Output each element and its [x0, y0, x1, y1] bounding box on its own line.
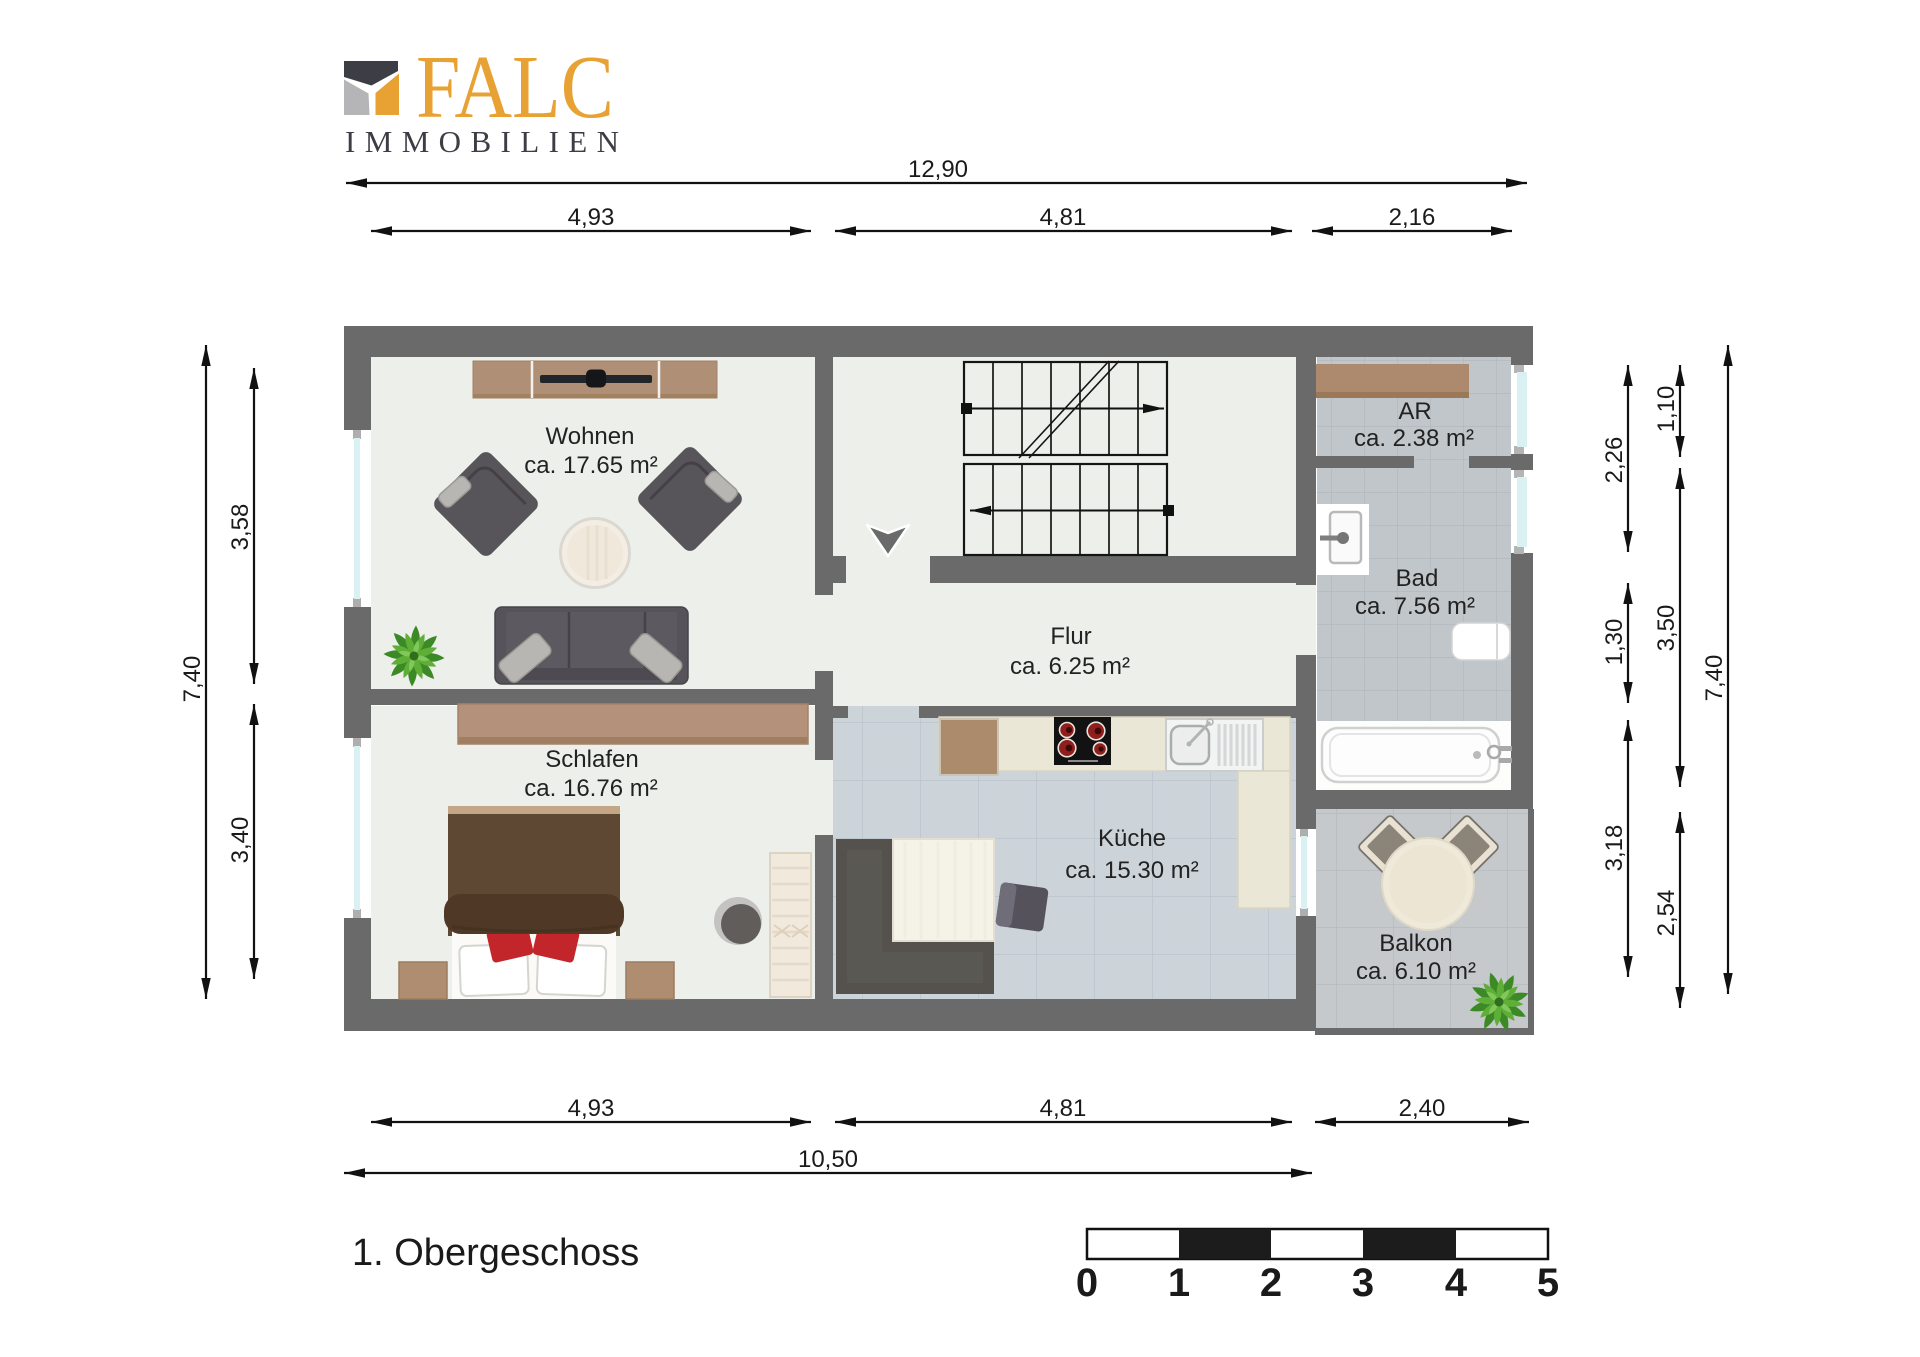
- svg-text:4: 4: [1445, 1261, 1468, 1305]
- svg-text:1. Obergeschoss: 1. Obergeschoss: [352, 1232, 639, 1274]
- svg-text:4,93: 4,93: [568, 204, 615, 231]
- svg-text:ca. 17.65 m²: ca. 17.65 m²: [524, 452, 657, 479]
- svg-text:Wohnen: Wohnen: [546, 423, 635, 450]
- svg-text:4,81: 4,81: [1040, 204, 1087, 231]
- svg-text:2,16: 2,16: [1389, 204, 1436, 231]
- svg-text:ca. 6.25 m²: ca. 6.25 m²: [1010, 653, 1130, 680]
- svg-text:ca. 16.76 m²: ca. 16.76 m²: [524, 775, 657, 802]
- svg-text:2,26: 2,26: [1601, 437, 1628, 484]
- svg-text:ca. 2.38 m²: ca. 2.38 m²: [1354, 425, 1474, 452]
- svg-text:4,93: 4,93: [568, 1095, 615, 1122]
- svg-text:12,90: 12,90: [908, 156, 968, 183]
- svg-text:1: 1: [1168, 1261, 1190, 1305]
- svg-text:Balkon: Balkon: [1379, 930, 1452, 957]
- svg-text:3,18: 3,18: [1601, 825, 1628, 872]
- svg-text:3,58: 3,58: [227, 504, 254, 551]
- svg-text:1,30: 1,30: [1601, 619, 1628, 666]
- svg-text:7,40: 7,40: [179, 656, 206, 703]
- svg-text:0: 0: [1076, 1261, 1098, 1305]
- svg-text:2: 2: [1260, 1261, 1282, 1305]
- svg-text:Küche: Küche: [1098, 825, 1166, 852]
- svg-text:1,10: 1,10: [1653, 386, 1680, 433]
- svg-text:ca. 15.30 m²: ca. 15.30 m²: [1065, 857, 1198, 884]
- svg-text:5: 5: [1537, 1261, 1559, 1305]
- svg-text:IMMOBILIEN: IMMOBILIEN: [345, 124, 619, 159]
- svg-text:FALC: FALC: [416, 38, 614, 137]
- svg-text:4,81: 4,81: [1040, 1095, 1087, 1122]
- svg-text:10,50: 10,50: [798, 1146, 858, 1173]
- svg-text:2,40: 2,40: [1399, 1095, 1446, 1122]
- svg-text:3: 3: [1352, 1261, 1374, 1305]
- svg-text:ca. 6.10 m²: ca. 6.10 m²: [1356, 958, 1476, 985]
- svg-text:Schlafen: Schlafen: [545, 746, 638, 773]
- svg-text:2,54: 2,54: [1653, 890, 1680, 937]
- svg-text:ca. 7.56 m²: ca. 7.56 m²: [1355, 593, 1475, 620]
- svg-text:7,40: 7,40: [1701, 655, 1728, 702]
- svg-text:3,50: 3,50: [1653, 605, 1680, 652]
- svg-text:3,40: 3,40: [227, 817, 254, 864]
- svg-text:Bad: Bad: [1396, 565, 1439, 592]
- svg-text:Flur: Flur: [1050, 623, 1091, 650]
- svg-text:AR: AR: [1398, 398, 1431, 425]
